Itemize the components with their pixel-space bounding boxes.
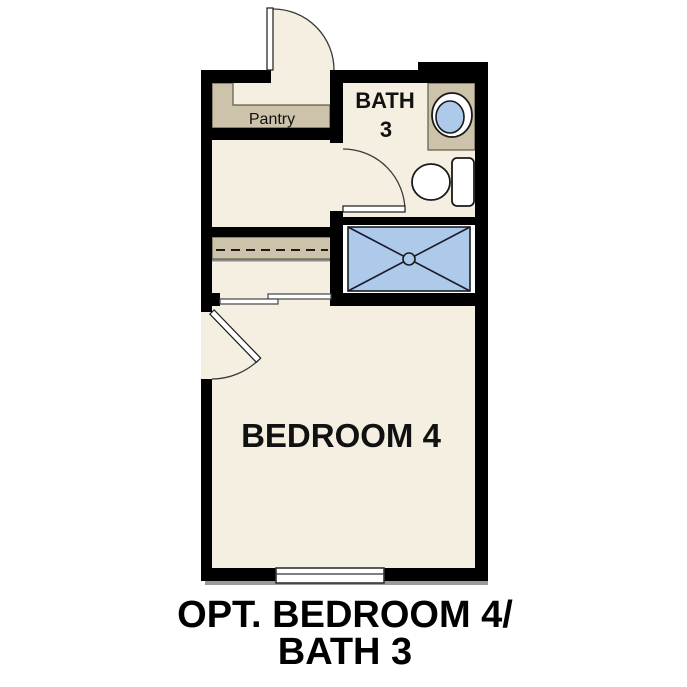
bedroom-door-threshold (201, 312, 212, 379)
wall-bottom-left (201, 568, 276, 581)
wall-shower-left (330, 211, 343, 306)
closet-bypass-door-right (268, 294, 331, 299)
window (276, 568, 384, 583)
wall-top-bath (330, 70, 418, 83)
bath-label-line2: 3 (380, 117, 392, 142)
bath-label-line1: BATH (355, 88, 414, 113)
top-door-leaf (267, 8, 273, 70)
wall-bedroom-top-stub (201, 293, 220, 306)
shower (348, 227, 470, 291)
top-door-swing-area (273, 9, 334, 70)
caption: OPT. BEDROOM 4/ BATH 3 (177, 594, 513, 673)
wall-right (475, 62, 488, 581)
caption-line1: OPT. BEDROOM 4/ (177, 594, 513, 636)
top-door-threshold (271, 70, 330, 83)
wall-divider-upper (330, 70, 343, 143)
closet-shelf (212, 237, 331, 259)
closet-bypass-door-left (220, 299, 278, 304)
caption-line2: BATH 3 (278, 631, 412, 673)
bedroom-label: BEDROOM 4 (241, 417, 442, 454)
wall-bottom-right (384, 568, 488, 581)
wall-closet-top (201, 227, 335, 237)
wall-shower-top (343, 217, 475, 225)
wall-bedroom-top (330, 293, 488, 306)
shower-drain (403, 253, 415, 265)
bath-door-threshold (330, 143, 343, 211)
wall-top-pantry (201, 70, 271, 83)
wall-left-upper (201, 70, 212, 312)
floorplan-drawing: Pantry BATH 3 BEDROOM 4 OPT. BEDROOM 4/ … (0, 0, 687, 687)
window-frame (276, 568, 384, 583)
wall-left-lower (201, 379, 212, 581)
toilet-bowl (412, 164, 450, 200)
toilet-tank (452, 158, 474, 206)
wall-pantry-bottom (201, 128, 343, 140)
floorplan-page: Pantry BATH 3 BEDROOM 4 OPT. BEDROOM 4/ … (0, 0, 687, 687)
bath-door-leaf (343, 206, 405, 212)
sink-basin (436, 101, 464, 133)
pantry-label: Pantry (249, 111, 295, 128)
